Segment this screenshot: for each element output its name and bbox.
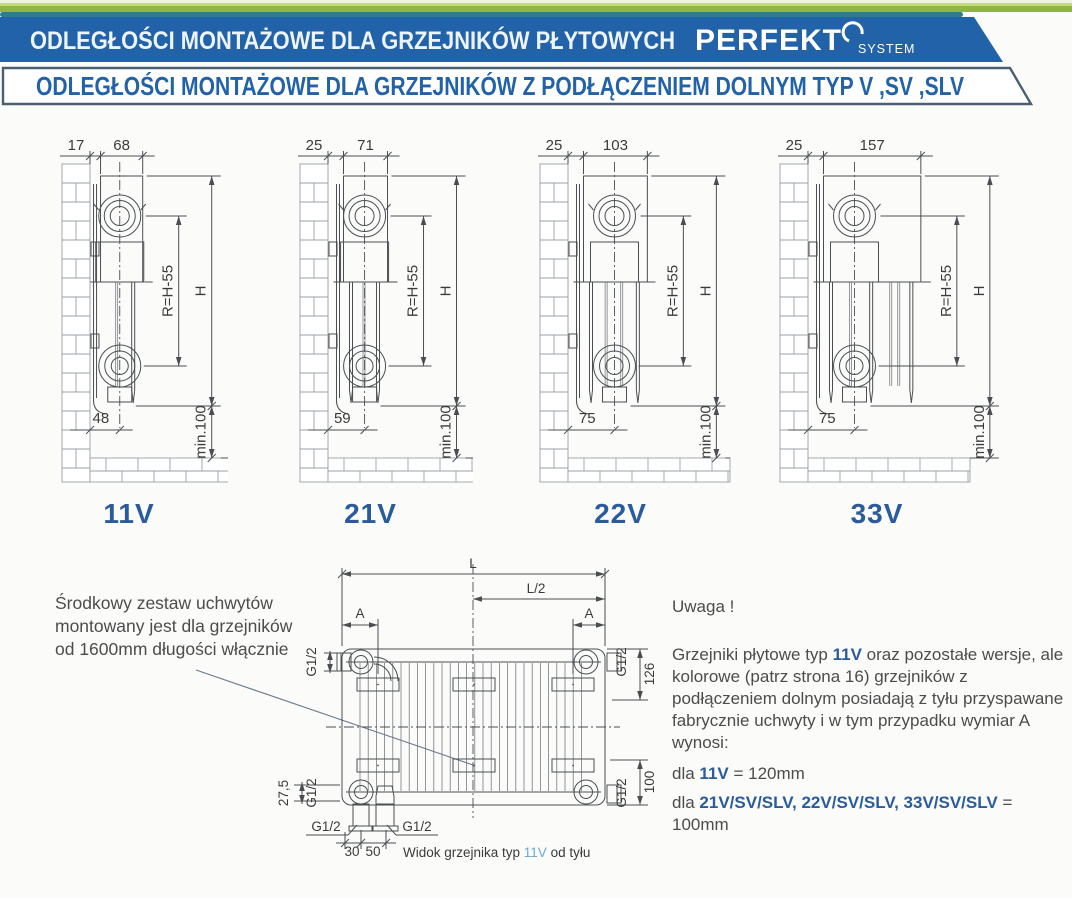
line1-before: dla [672, 764, 699, 783]
banner-secondary-title: ODLEGŁOŚCI MONTAŻOWE DLA GRZEJNIKÓW Z PO… [36, 71, 965, 101]
radiator-side-view [91, 162, 153, 428]
rear-caption-type: 11V [524, 845, 547, 860]
diagram-side-21v: 2571HR=H-55min.10059 [268, 130, 473, 490]
dim-G12-bottom-right: G1/2 [402, 819, 431, 834]
dim-G12-bl: G1/2 [304, 778, 319, 807]
radiator-side-view [809, 162, 931, 428]
dim-H: H [697, 286, 714, 297]
rear-caption: Widok grzejnika typ 11V od tyłu [403, 845, 590, 860]
diagram-column-33v: 25157HR=H-55min.10075 33V [748, 130, 1006, 495]
brand-logo-sub: SYSTEM [858, 42, 915, 56]
dim-depth: 157 [860, 137, 885, 154]
dim-H: H [193, 286, 210, 297]
dim-50: 50 [365, 844, 380, 859]
dim-R: R=H-55 [160, 265, 177, 317]
header-banner: ODLEGŁOŚCI MONTAŻOWE DLA GRZEJNIKÓW PŁYT… [0, 0, 1072, 110]
header-strip-green [0, 6, 1072, 12]
dim-H: H [438, 286, 455, 297]
dim-min100: min.100 [697, 405, 714, 458]
type-label-33v: 33V [748, 498, 1006, 530]
dim-R: R=H-55 [664, 265, 681, 317]
note-leader-line [196, 670, 473, 765]
line1-bold: 11V [699, 764, 728, 783]
rear-corner-fittings [337, 650, 621, 831]
dim-A-right: A [584, 606, 593, 621]
type-label-22v: 22V [508, 498, 733, 530]
rear-caption-after: od tyłu [547, 845, 591, 860]
dim-L: L [469, 556, 477, 571]
dim-30: 30 [344, 844, 359, 859]
type-label-21v: 21V [268, 498, 473, 530]
dim-G12-tr: G1/2 [614, 647, 629, 676]
rear-caption-before: Widok grzejnika typ [403, 845, 524, 860]
dim-H: H [971, 286, 988, 297]
dim-gap: 25 [546, 137, 563, 154]
dim-bottom: 59 [334, 410, 351, 427]
line2-before: dla [672, 793, 699, 812]
diagram-column-21v: 2571HR=H-55min.10059 21V [268, 130, 473, 495]
note-right-paragraph: Grzejniki płytowe typ 11V oraz pozostałe… [672, 644, 1072, 754]
rear-body [326, 564, 621, 831]
dim-G12-br: G1/2 [614, 778, 629, 807]
dim-L2: L/2 [527, 581, 546, 596]
rear-dimensions [294, 568, 648, 849]
dim-min100: min.100 [438, 405, 455, 458]
dim-gap: 17 [68, 137, 85, 154]
dim-gap: 25 [786, 137, 803, 154]
dim-gap: 25 [306, 137, 323, 154]
header-strip-green-light [0, 3, 1072, 6]
note-right-line2: dla 21V/SV/SLV, 22V/SV/SLV, 33V/SV/SLV =… [672, 792, 1072, 836]
dim-bottom: 75 [579, 410, 596, 427]
note-right-line1: dla 11V = 120mm [672, 763, 1072, 785]
header-strip-teal [0, 12, 963, 17]
dim-G12-tl: G1/2 [304, 647, 319, 676]
dimensions: 25157HR=H-55min.10075 [778, 137, 999, 462]
page: ODLEGŁOŚCI MONTAŻOWE DLA GRZEJNIKÓW PŁYT… [0, 0, 1072, 898]
line2-bold: 21V/SV/SLV, 22V/SV/SLV, 33V/SV/SLV [699, 793, 997, 812]
dim-275: 27,5 [276, 780, 291, 806]
line1-after: = 120mm [729, 764, 805, 783]
dim-depth: 103 [603, 137, 628, 154]
radiator-side-view [569, 162, 657, 428]
radiator-side-view [329, 162, 398, 428]
dim-bottom: 75 [819, 410, 836, 427]
dim-min100: min.100 [193, 405, 210, 458]
rear-view-diagram: L L/2 A A G1/2 G1/2 126 27,5 G1/2 G1/2 1… [180, 552, 680, 882]
diagram-column-22v: 25103HR=H-55min.10075 22V [508, 130, 733, 495]
dim-100: 100 [642, 771, 657, 794]
dim-bottom: 48 [93, 410, 110, 427]
brand-logo: PERFEKT [695, 24, 842, 57]
banner-primary-title: ODLEGŁOŚCI MONTAŻOWE DLA GRZEJNIKÓW PŁYT… [30, 25, 675, 55]
diagram-column-11v: 1768HR=H-55min.10048 11V [30, 130, 228, 495]
dim-126: 126 [642, 663, 657, 686]
dim-depth: 68 [113, 137, 130, 154]
dim-depth: 71 [357, 137, 374, 154]
note-right-title: Uwaga ! [672, 596, 1072, 618]
diagram-side-33v: 25157HR=H-55min.10075 [748, 130, 1006, 490]
dim-R: R=H-55 [405, 265, 422, 317]
paragraph-type-bold: 11V [833, 645, 862, 664]
dim-G12-bottom-left: G1/2 [311, 819, 340, 834]
diagram-side-22v: 25103HR=H-55min.10075 [508, 130, 733, 490]
dim-R: R=H-55 [938, 265, 955, 317]
type-label-11v: 11V [30, 498, 228, 530]
dim-min100: min.100 [971, 405, 988, 458]
diagram-side-11v: 1768HR=H-55min.10048 [30, 130, 228, 490]
note-right: Uwaga ! Grzejniki płytowe typ 11V oraz p… [672, 596, 1072, 836]
paragraph-text: Grzejniki płytowe typ [672, 645, 833, 664]
header-strip-pale [0, 0, 1072, 3]
dim-A-left: A [355, 606, 364, 621]
